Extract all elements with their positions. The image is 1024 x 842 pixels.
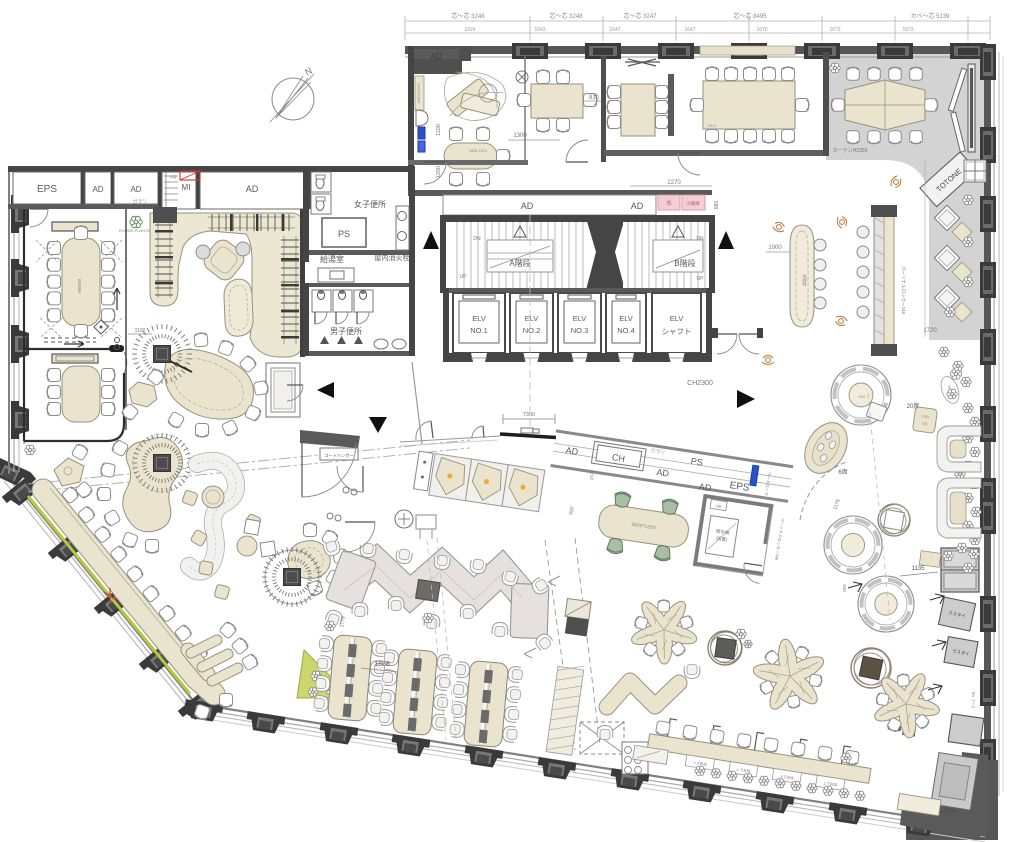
- svg-text:カベ〜芯 5139: カベ〜芯 5139: [910, 12, 950, 20]
- svg-text:冷蔵庫: 冷蔵庫: [686, 200, 700, 207]
- svg-text:ELV: ELV: [573, 314, 587, 323]
- svg-text:充電席: 充電席: [802, 274, 808, 286]
- svg-text:MI: MI: [182, 183, 191, 192]
- svg-text:940: 940: [842, 584, 847, 592]
- svg-text:内装: 内装: [170, 174, 177, 179]
- svg-text:PS: PS: [690, 456, 703, 468]
- svg-text:1673: 1673: [829, 27, 840, 33]
- svg-text:1100: 1100: [436, 124, 442, 136]
- svg-text:ELV: ELV: [619, 314, 633, 323]
- svg-text:水: 水: [666, 199, 672, 207]
- svg-text:AD: AD: [656, 467, 670, 479]
- svg-text:UB: UB: [715, 503, 722, 509]
- svg-text:588: 588: [712, 201, 718, 210]
- svg-text:AD: AD: [521, 201, 534, 211]
- svg-text:950: 950: [568, 506, 575, 515]
- svg-text:コートハンガー: コートハンガー: [324, 452, 353, 459]
- svg-text:NSD 2411: NSD 2411: [469, 148, 488, 153]
- svg-text:NSD W1500: NSD W1500: [417, 83, 421, 103]
- svg-text:DN: DN: [473, 236, 481, 242]
- svg-text:EPS: EPS: [37, 184, 57, 195]
- svg-text:屋内消火栓: 屋内消火栓: [375, 253, 410, 262]
- svg-text:ELV: ELV: [525, 314, 539, 323]
- svg-text:1100: 1100: [135, 328, 146, 334]
- svg-text:A階段: A階段: [509, 258, 530, 268]
- svg-text:ELV: ELV: [670, 314, 684, 323]
- svg-text:AD: AD: [92, 185, 103, 194]
- svg-text:1624: 1624: [464, 27, 475, 33]
- svg-text:NO.3: NO.3: [571, 326, 589, 335]
- svg-text:DN: DN: [696, 236, 704, 242]
- svg-text:AD: AD: [565, 445, 579, 457]
- svg-text:1000: 1000: [768, 245, 782, 251]
- svg-text:NO.1: NO.1: [470, 326, 488, 335]
- svg-text:1135: 1135: [912, 566, 926, 572]
- svg-text:1670: 1670: [756, 27, 767, 33]
- svg-text:W8000: W8000: [77, 278, 82, 293]
- svg-text:シャフト: シャフト: [662, 327, 692, 336]
- svg-text:1673: 1673: [902, 27, 913, 33]
- svg-text:700: 700: [921, 422, 927, 427]
- svg-text:PS: PS: [338, 229, 350, 239]
- svg-text:NO.4: NO.4: [617, 326, 635, 335]
- svg-text:6席: 6席: [838, 468, 847, 476]
- svg-text:AD: AD: [430, 52, 441, 61]
- svg-text:900: 900: [859, 394, 866, 399]
- svg-text:810: 810: [589, 95, 600, 101]
- svg-text:AD: AD: [698, 481, 712, 493]
- svg-text:UP: UP: [460, 274, 468, 280]
- svg-text:芯〜芯 3248: 芯〜芯 3248: [451, 12, 485, 20]
- svg-text:ROUND PLANTER: ROUND PLANTER: [119, 228, 153, 233]
- svg-text:女子便所: 女子便所: [354, 199, 386, 209]
- svg-text:1720: 1720: [923, 328, 937, 334]
- svg-text:ガラリ: ガラリ: [132, 198, 147, 205]
- svg-text:1647: 1647: [684, 27, 695, 33]
- svg-text:8514: 8514: [708, 123, 718, 128]
- svg-text:AD: AD: [246, 184, 259, 194]
- svg-text:AD: AD: [130, 185, 141, 194]
- svg-text:NO.2: NO.2: [523, 326, 541, 335]
- svg-text:7300: 7300: [523, 412, 535, 418]
- svg-text:AD: AD: [631, 201, 644, 211]
- svg-text:カーテンH2350: カーテンH2350: [833, 148, 868, 154]
- svg-text:給湯室: 給湯室: [320, 254, 344, 264]
- svg-text:CH: CH: [611, 452, 625, 464]
- svg-text:CH2300: CH2300: [687, 380, 713, 387]
- svg-text:ELV: ELV: [472, 314, 486, 323]
- svg-text:2270: 2270: [667, 180, 681, 186]
- svg-text:1643: 1643: [534, 27, 545, 33]
- svg-text:芯〜芯 8495: 芯〜芯 8495: [733, 12, 767, 20]
- svg-text:B階段: B階段: [674, 258, 695, 268]
- svg-text:芯〜芯 3247: 芯〜芯 3247: [623, 12, 657, 20]
- svg-text:1647: 1647: [609, 27, 620, 33]
- svg-text:TEL ブース: TEL ブース: [971, 691, 976, 709]
- svg-text:UP: UP: [697, 276, 705, 282]
- svg-text:1888: 1888: [374, 661, 390, 668]
- svg-text:芯〜芯 3248: 芯〜芯 3248: [549, 12, 583, 20]
- svg-text:男子便所: 男子便所: [330, 326, 362, 336]
